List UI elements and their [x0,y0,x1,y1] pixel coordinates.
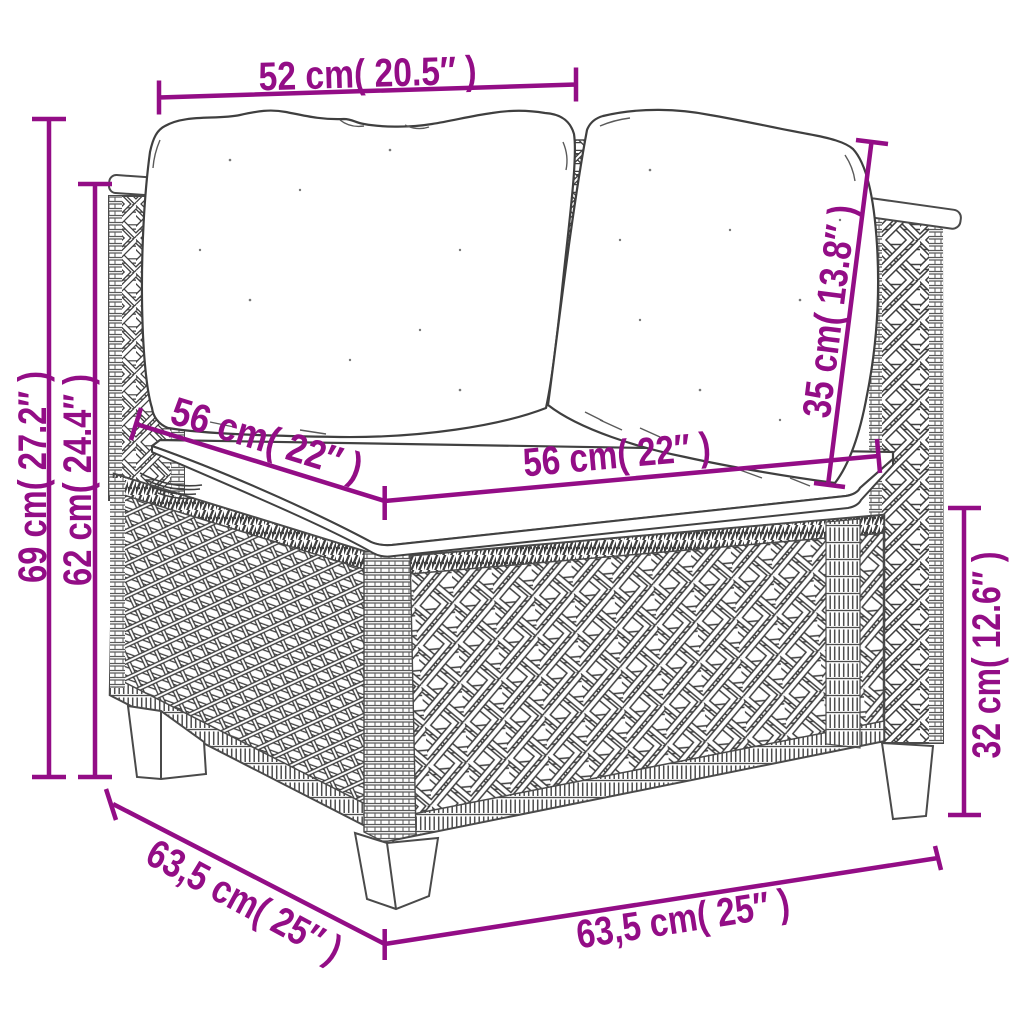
svg-text:62 cm( 24.4″ ): 62 cm( 24.4″ ) [56,374,100,586]
svg-text:69 cm( 27.2″ ): 69 cm( 27.2″ ) [11,371,55,583]
svg-text:52 cm( 20.5″ ): 52 cm( 20.5″ ) [258,49,477,100]
svg-text:32 cm( 12.6″ ): 32 cm( 12.6″ ) [965,552,1009,759]
